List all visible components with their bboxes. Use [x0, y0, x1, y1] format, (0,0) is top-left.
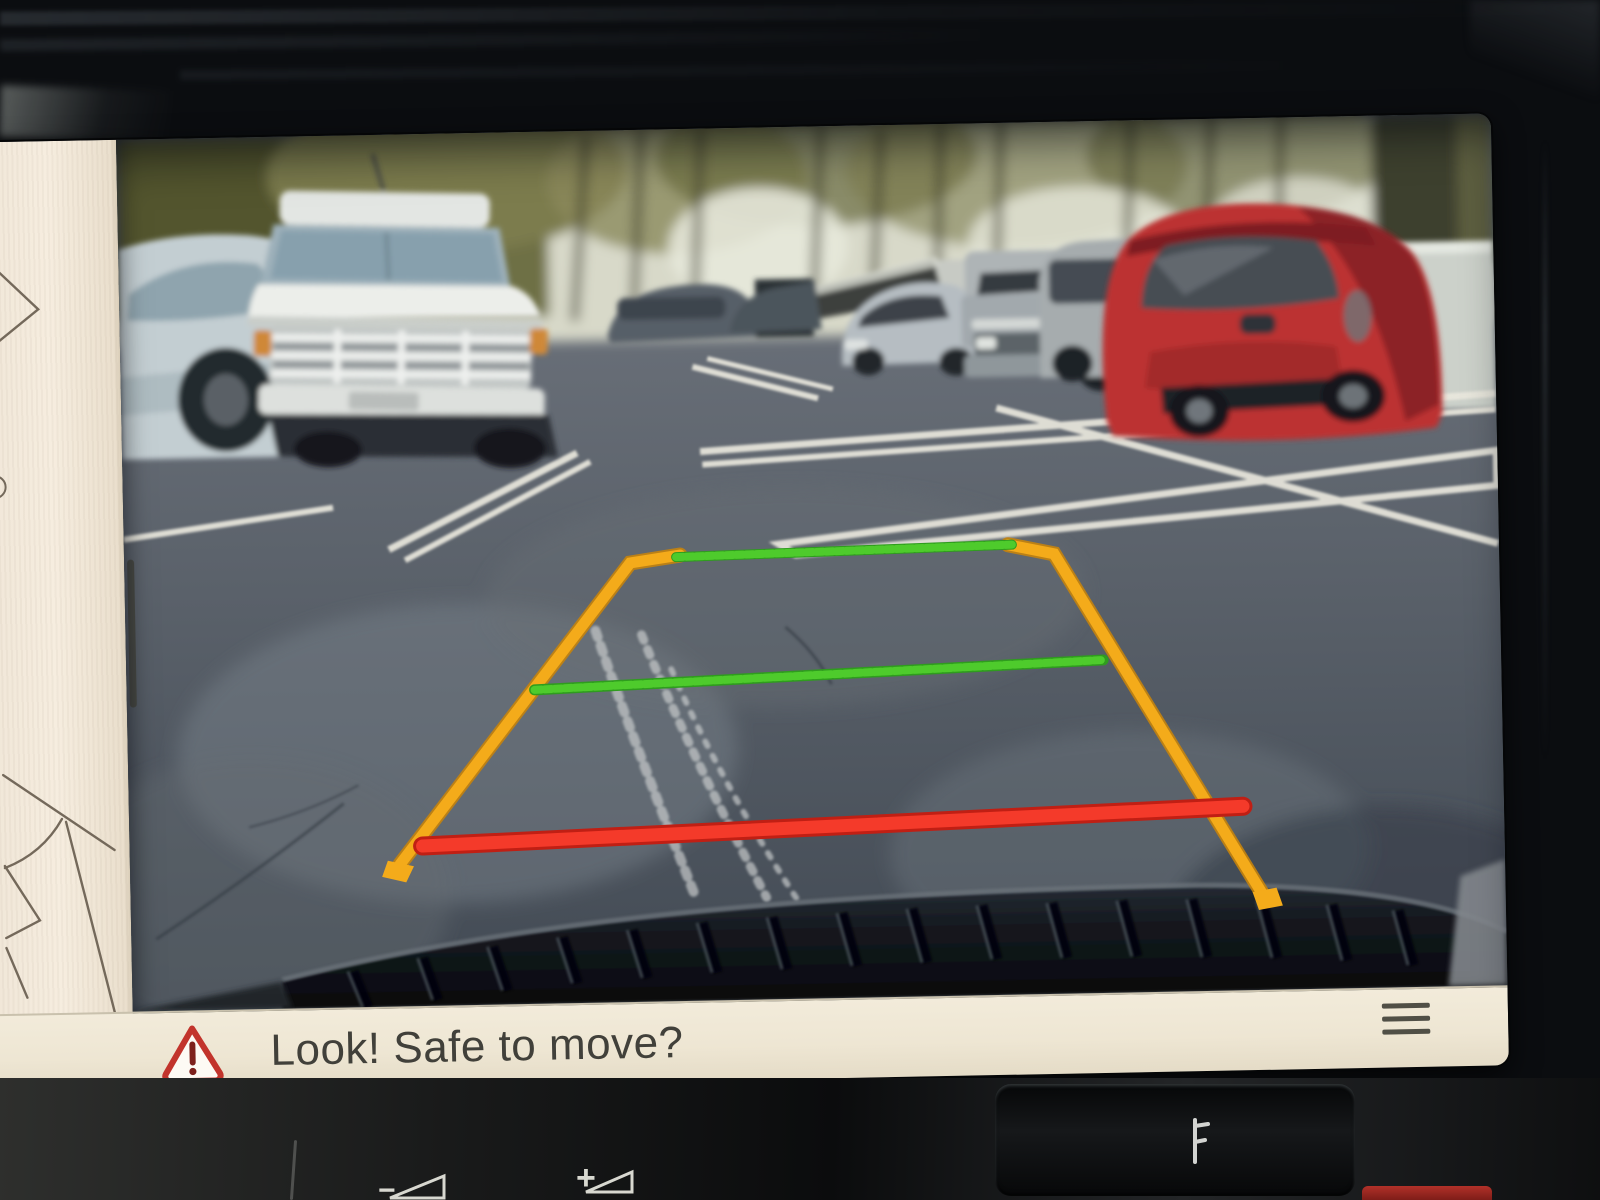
volume-plus-button[interactable]: + [576, 1168, 596, 1188]
left-split-panel [0, 140, 134, 1095]
gloss-black-trim [995, 1084, 1355, 1196]
volume-slider-triangles [280, 1160, 700, 1200]
bezel-reflection [0, 29, 1000, 51]
hamburger-menu-icon[interactable] [1382, 1003, 1431, 1038]
trim-reflection-mark [1190, 1118, 1212, 1164]
infotainment-screen: Look! Safe to move? [0, 113, 1509, 1094]
hazard-light-sliver [1362, 1186, 1492, 1200]
volume-controls: − + [280, 1160, 700, 1200]
bezel-reflection [0, 0, 1600, 25]
bezel-reflection [180, 58, 1600, 80]
volume-minus-button[interactable]: − [378, 1186, 396, 1196]
bezel-reflection [0, 85, 171, 143]
dashboard-photo: Look! Safe to move? − + [0, 0, 1600, 1200]
warning-message: Look! Safe to move? [270, 1018, 684, 1076]
warning-triangle-icon [160, 1023, 225, 1082]
camera-scene [116, 113, 1507, 1011]
rear-camera-view [116, 113, 1507, 1011]
red-hatchback [1100, 200, 1443, 443]
dashboard-lower-trim [0, 1078, 1600, 1200]
parking-graphic-lines [0, 140, 134, 1095]
bezel-highlight [1543, 140, 1547, 760]
bezel-reflection [1470, 0, 1600, 100]
